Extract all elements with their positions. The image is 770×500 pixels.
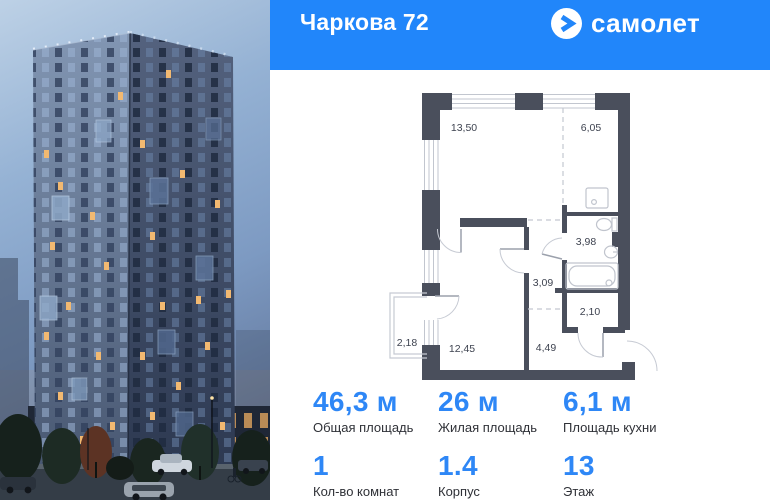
room-label-balcony: 2,18 bbox=[397, 337, 418, 349]
stat-total-area: 46,3 м Общая площадь bbox=[313, 387, 435, 435]
stat-label: Общая площадь bbox=[313, 420, 435, 435]
room-label-hallway: 4,49 bbox=[536, 342, 557, 354]
brand-logo: самолет bbox=[551, 8, 700, 39]
stat-value: 46,3 м bbox=[313, 387, 435, 416]
stat-building: 1.4 Корпус bbox=[438, 451, 560, 499]
stat-floor: 13 Этаж bbox=[563, 451, 685, 499]
stat-value: 1.4 bbox=[438, 451, 560, 480]
stat-label: Корпус bbox=[438, 484, 560, 499]
floor-plan: 13,50 6,05 3,98 3,09 2,10 2,18 12,45 4,4… bbox=[385, 85, 660, 385]
toilet-icon bbox=[612, 218, 617, 231]
stat-living-area: 26 м Жилая площадь bbox=[438, 387, 560, 435]
stat-label: Кол-во комнат bbox=[313, 484, 435, 499]
samolet-arrow-icon bbox=[551, 8, 582, 39]
stat-value: 26 м bbox=[438, 387, 560, 416]
stat-kitchen-area: 6,1 м Площадь кухни bbox=[563, 387, 685, 435]
room-label-wardrobe: 2,10 bbox=[580, 306, 601, 318]
stat-rooms-count: 1 Кол-во комнат bbox=[313, 451, 435, 499]
room-label-bathroom: 3,98 bbox=[576, 236, 597, 248]
listing-card: Чаркова 72 самолет bbox=[0, 0, 770, 500]
room-label-living: 13,50 bbox=[451, 122, 477, 134]
stat-value: 13 bbox=[563, 451, 685, 480]
room-label-bedroom: 12,45 bbox=[449, 343, 475, 355]
page-title: Чаркова 72 bbox=[300, 9, 429, 36]
brand-wordmark: самолет bbox=[591, 8, 700, 39]
stat-label: Жилая площадь bbox=[438, 420, 560, 435]
room-label-kitchen: 6,05 bbox=[581, 122, 602, 134]
stat-label: Площадь кухни bbox=[563, 420, 685, 435]
kitchen-sink-icon bbox=[586, 188, 608, 208]
room-label-hall: 3,09 bbox=[533, 277, 554, 289]
building-photo bbox=[0, 0, 270, 500]
stat-value: 6,1 м bbox=[563, 387, 685, 416]
stat-value: 1 bbox=[313, 451, 435, 480]
stat-label: Этаж bbox=[563, 484, 685, 499]
